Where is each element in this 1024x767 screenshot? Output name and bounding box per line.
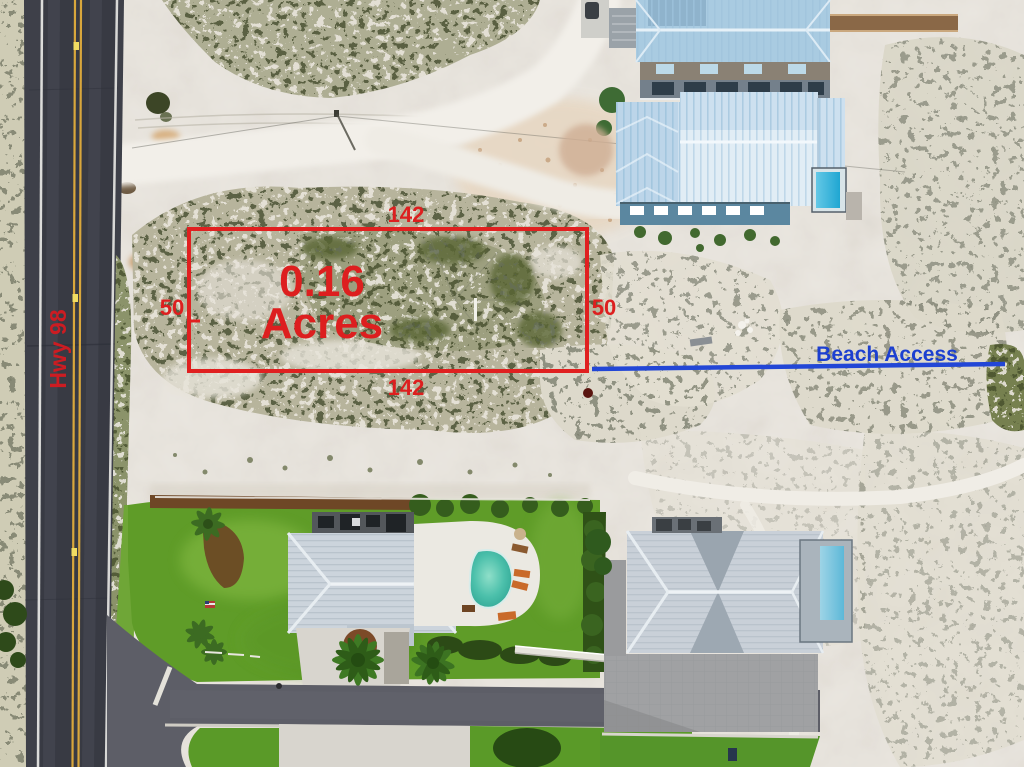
svg-text:50: 50	[160, 295, 184, 320]
svg-text:142: 142	[388, 375, 425, 400]
svg-text:Hwy 98: Hwy 98	[45, 309, 71, 388]
svg-text:Beach Access: Beach Access	[816, 343, 958, 366]
svg-text:50: 50	[592, 295, 616, 320]
svg-text:142: 142	[388, 202, 425, 227]
svg-text:Acres: Acres	[261, 299, 383, 348]
